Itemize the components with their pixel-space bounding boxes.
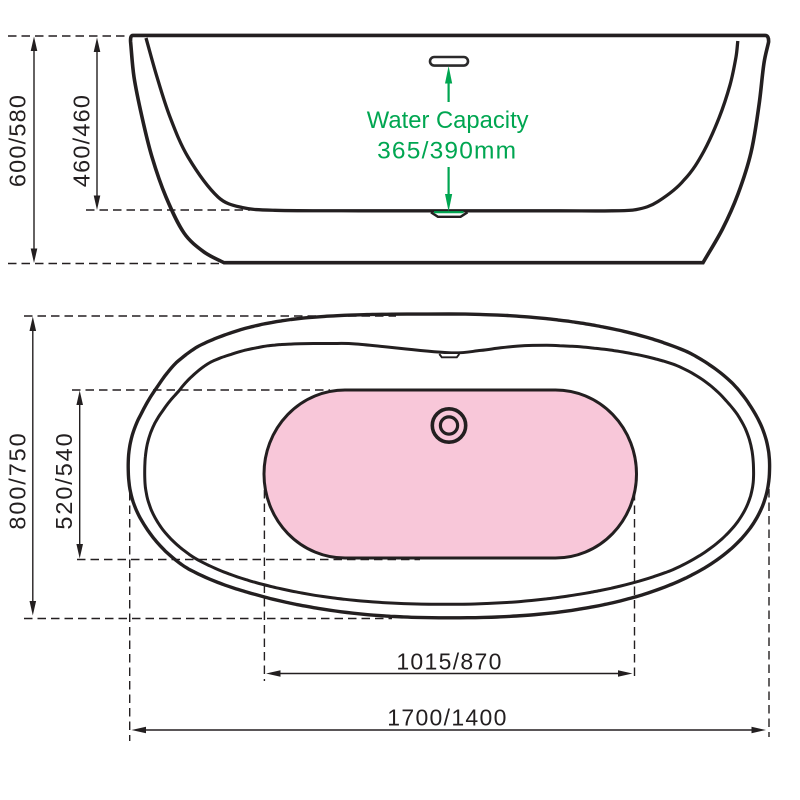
svg-text:460/460: 460/460	[68, 94, 94, 187]
svg-text:365/390mm: 365/390mm	[377, 138, 517, 165]
svg-text:520/540: 520/540	[51, 431, 77, 529]
svg-text:800/750: 800/750	[4, 431, 30, 529]
svg-text:Water Capacity: Water Capacity	[367, 107, 529, 134]
svg-text:1015/870: 1015/870	[396, 648, 502, 674]
svg-text:600/580: 600/580	[4, 94, 30, 187]
svg-text:1700/1400: 1700/1400	[387, 704, 507, 730]
